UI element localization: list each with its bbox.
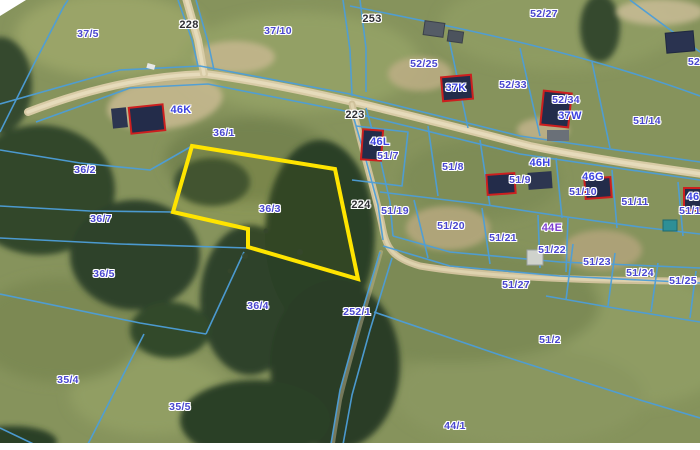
cadastral-map-viewport[interactable]: 37/522837/1025352/275252/2552/3352/3437W… [0, 0, 700, 450]
building-51-9 [486, 173, 515, 195]
page-bottom-mask [0, 443, 700, 450]
building-grey-37w [547, 130, 569, 141]
building-46l [361, 129, 383, 160]
building-teal [663, 220, 677, 231]
building-topright [665, 31, 695, 53]
building-46h [527, 171, 552, 190]
aerial-map[interactable] [0, 0, 700, 450]
building-46f-edge [684, 188, 700, 210]
building-small-1 [423, 21, 445, 38]
building-46k-shed [111, 107, 128, 128]
building-46k [129, 104, 166, 133]
building-37k [441, 75, 473, 102]
building-46g [584, 177, 611, 199]
building-37w [540, 91, 571, 128]
building-small-2 [447, 30, 463, 43]
building-white-shed [527, 250, 543, 265]
